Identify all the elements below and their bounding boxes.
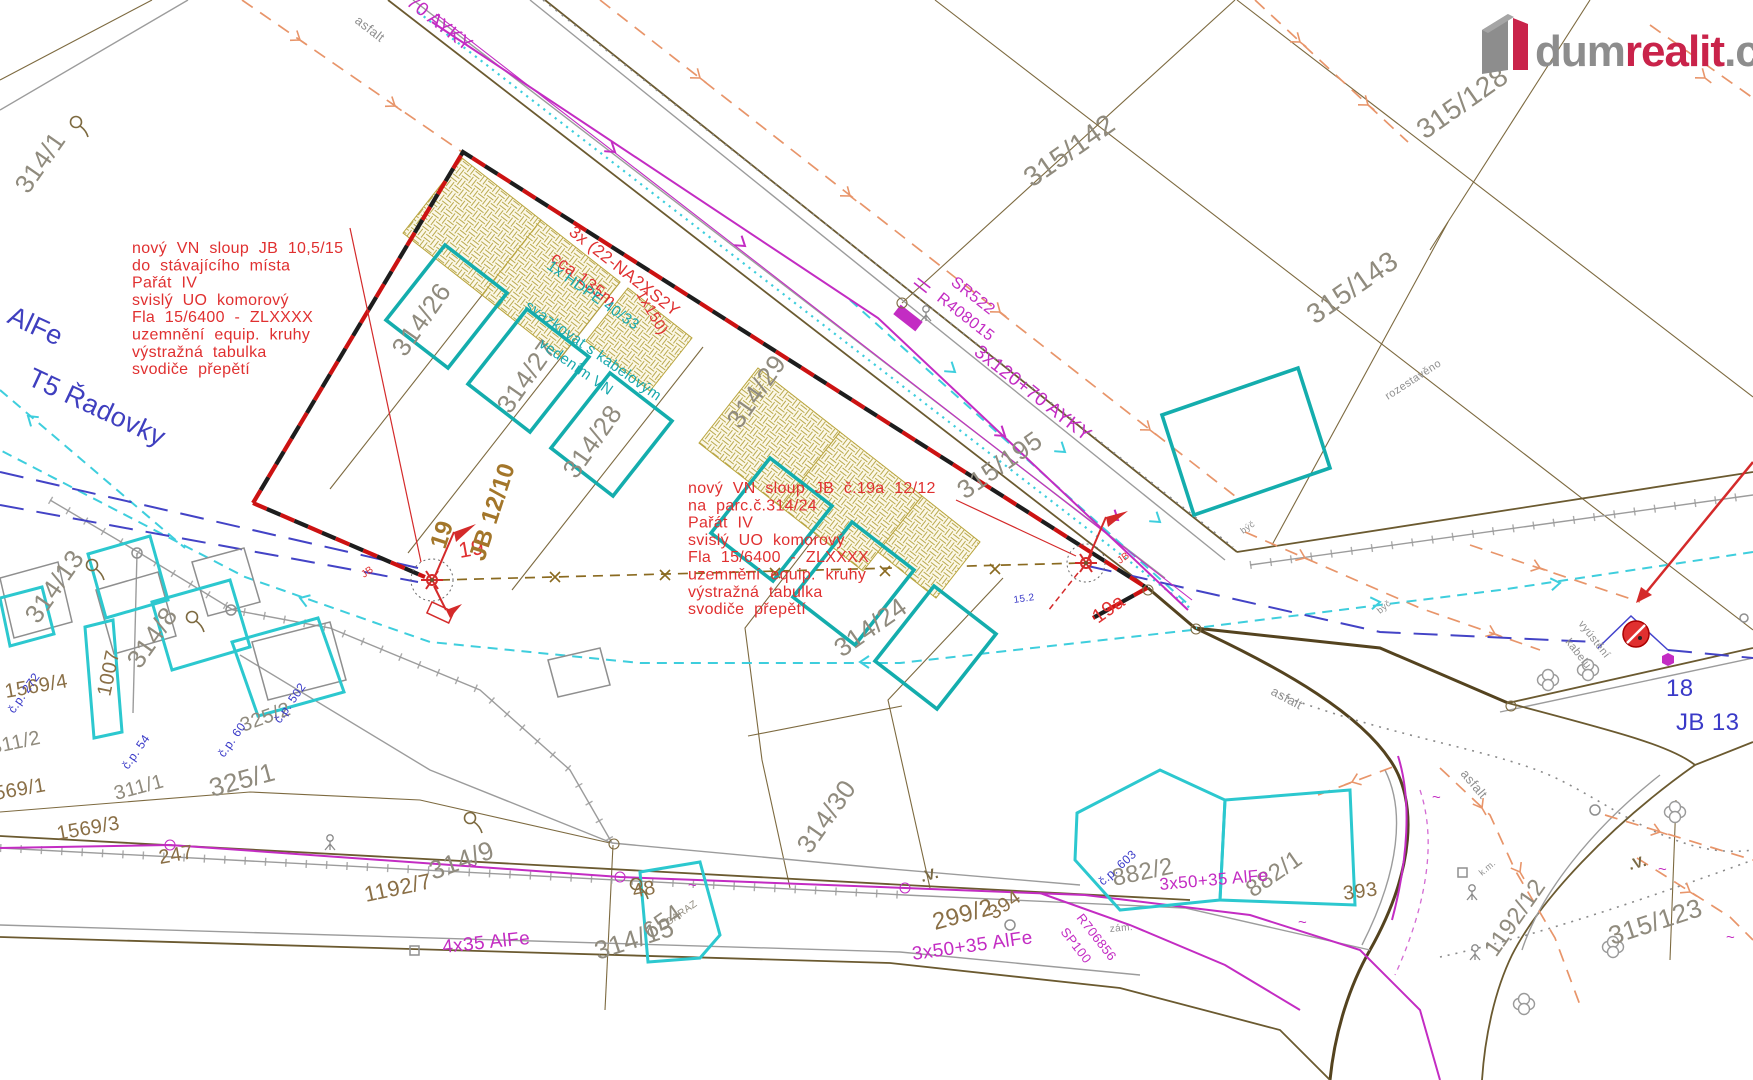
parcel-315-128: 315/128 [1411, 60, 1514, 145]
pole-19-jb1210-b: JB 12/10 [464, 460, 521, 564]
parcel-299-2: 299/2 [930, 894, 997, 936]
parcel-315-142: 315/142 [1018, 108, 1121, 193]
cable-mark: ~ [1726, 929, 1735, 946]
annotation-line: nový VN sloup JB 10,5/15 [132, 240, 343, 257]
annotation-line: svislý UO komorový [132, 292, 289, 309]
annotation-line: svodiče přepětí [688, 601, 806, 618]
parcel-48: 48 [630, 877, 657, 903]
byc-label-2: býč [1238, 519, 1256, 536]
parcel-314-28: 314/28 [556, 399, 628, 483]
pointer-arrow-line [1640, 462, 1753, 600]
landuse-symbol-315: .V. [1627, 853, 1649, 874]
annotation-line: svislý UO komorový [688, 532, 845, 549]
logo-building-icon [1482, 14, 1528, 74]
annotation-line: uzemnění equip. kruhy [688, 567, 866, 584]
parcel-314-30: 314/30 [790, 774, 862, 858]
annotation-line: Fla 15/6400 - ZLXXXX [688, 549, 869, 566]
parcel-314-13: 314/13 [18, 544, 90, 628]
parcel-1569-1: 1569/1 [0, 774, 47, 807]
annotation-line: uzemnění equip. kruhy [132, 327, 310, 344]
cadastral-map: 314/1314/26314/27314/28314/29314/24314/3… [0, 0, 1753, 1080]
distance-15-2: 15.2 [1013, 592, 1035, 606]
cable-mark: ~ [1658, 861, 1667, 878]
parcel-314-9: 314/9 [425, 835, 498, 886]
landuse-symbol-299: .V. [919, 865, 941, 886]
road-junction-edge [1148, 588, 1508, 703]
km-label: k.m. [1477, 858, 1498, 878]
parcel-325-1: 325/1 [206, 756, 279, 802]
annotation-line: do stávajícího místa [132, 257, 290, 274]
pole-18-label: 18 [1666, 675, 1694, 702]
annotation-line: výstražná tabulka [132, 344, 267, 361]
rozestaveno-label: rozestavěno [1383, 357, 1443, 402]
cable-mark: ~ [688, 877, 697, 894]
main-road-ne-edge [545, 0, 1237, 552]
annotation-line: na parc.č.314/24 [688, 497, 817, 514]
cable-mark: ~ [468, 857, 477, 874]
parcel-314-1: 314/1 [8, 126, 71, 198]
logo-dum: dum [1535, 27, 1625, 76]
building-rozestaveno [1162, 368, 1330, 515]
parcel-315-123: 315/123 [1605, 892, 1706, 950]
annotation-line: svodiče přepětí [132, 361, 250, 378]
pole-19a-number: 19a [1088, 590, 1129, 628]
pole-19-jb: JB [359, 564, 376, 580]
surface-asfalt-curve: asfalt [1458, 766, 1491, 801]
line-alfe-label: AlFe [3, 300, 67, 351]
cable-mark: ~ [1432, 789, 1441, 806]
annotation-line: Pařát IV [688, 515, 753, 532]
annotation-line: nový VN sloup JB č.19a 12/12 [688, 480, 936, 497]
surface-asfalt-top: asfalt [352, 13, 388, 45]
house-cp-60: č.p. 60 [215, 720, 249, 760]
transformer-sr522 [893, 305, 922, 332]
parcel-1192-7: 1192/7 [362, 868, 434, 907]
hexagon-marker [1662, 653, 1674, 666]
logo-realit: realit [1625, 27, 1726, 76]
parcel-311-2: 311/2 [0, 727, 43, 759]
parcel-247: 247 [157, 841, 195, 869]
pole-jb13-label: JB 13 [1676, 709, 1739, 736]
cable-mark: ~ [1298, 914, 1307, 931]
zam-label: zám. [1109, 922, 1133, 935]
cadastral-map-page: 314/1314/26314/27314/28314/29314/24314/3… [0, 0, 1753, 1080]
parcel-315-143: 315/143 [1301, 245, 1404, 330]
annotation-line: Fla 15/6400 - ZLXXXX [132, 309, 313, 326]
logo-text: dumrealit.cz [1535, 27, 1753, 76]
annotation-line: Pařát IV [132, 275, 197, 292]
logo-cz: .cz [1724, 27, 1753, 76]
annotation-line: výstražná tabulka [688, 584, 823, 601]
parcel-393: 393 [1342, 878, 1379, 905]
pole-19-jb1210-a: 19 [425, 517, 459, 551]
house-cp-54: č.p. 54 [119, 732, 153, 772]
cable-4x35-alfe: 4x35 AlFe [441, 928, 531, 958]
surface-asfalt-right: asfalt [1269, 683, 1306, 712]
annotation-pole-19: nový VN sloup JB 10,5/15do stávajícího m… [132, 240, 343, 378]
existing-pole-marker [1623, 621, 1649, 647]
logo: dumrealit.cz [1482, 14, 1753, 76]
